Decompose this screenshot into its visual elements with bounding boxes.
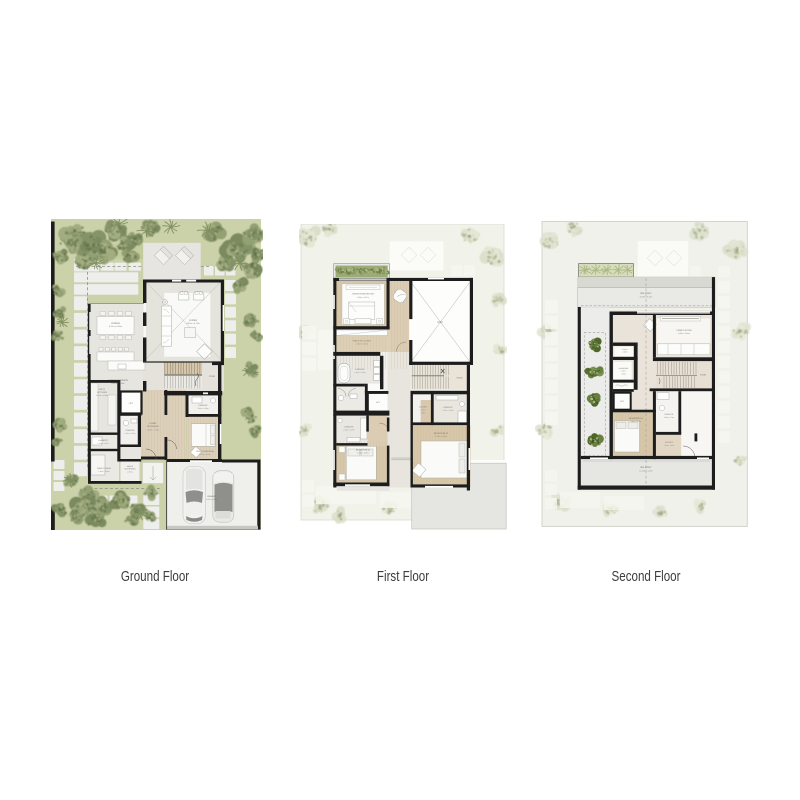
svg-text:BEDROOM 01: BEDROOM 01 xyxy=(434,432,449,435)
svg-text:GARAGE: GARAGE xyxy=(207,495,216,498)
svg-text:STAIR: STAIR xyxy=(700,374,706,377)
svg-text:MAID'S: MAID'S xyxy=(127,465,134,468)
svg-text:LIVING: LIVING xyxy=(189,319,197,322)
svg-text:6.75m x 5.50m: 6.75m x 5.50m xyxy=(206,498,218,501)
svg-text:POWDER: POWDER xyxy=(126,429,136,432)
svg-text:2.50m x 4.00m: 2.50m x 4.00m xyxy=(96,394,108,397)
svg-text:1.72m x: 1.72m x xyxy=(420,409,426,412)
svg-text:1.80m x 7.25m: 1.80m x 7.25m xyxy=(147,428,159,431)
svg-text:DINING: DINING xyxy=(111,322,120,325)
svg-text:BEDROOM 04: BEDROOM 04 xyxy=(629,417,643,420)
svg-text:2.50m x 2.00m: 2.50m x 2.00m xyxy=(98,470,110,473)
svg-text:2.75m x 2.45m: 2.75m x 2.45m xyxy=(442,409,454,412)
svg-text:FAMILY ROOM: FAMILY ROOM xyxy=(677,329,692,332)
svg-text:ENSUITE: ENSUITE xyxy=(344,426,354,429)
svg-text:LOBBY: LOBBY xyxy=(149,422,157,425)
svg-text:4.70m x 4.85m: 4.70m x 4.85m xyxy=(109,325,123,328)
svg-text:1.00m x 2.30m: 1.00m x 2.30m xyxy=(124,432,136,435)
svg-text:KITCHEN: KITCHEN xyxy=(97,391,107,394)
svg-text:1.80m x: 1.80m x xyxy=(622,348,628,351)
svg-text:2.30m x 1.30m: 2.30m x 1.30m xyxy=(97,442,109,445)
svg-text:BEDROOM 02: BEDROOM 02 xyxy=(356,449,371,452)
svg-text:4.95m x 2.50m: 4.95m x 2.50m xyxy=(356,343,368,346)
svg-text:4.70m x 4.00m: 4.70m x 4.00m xyxy=(435,435,447,438)
svg-text:STAIR: STAIR xyxy=(209,375,216,378)
svg-text:ENSUITE: ENSUITE xyxy=(355,368,365,371)
svg-text:BATHROOM: BATHROOM xyxy=(125,468,136,471)
svg-text:1.35m x: 1.35m x xyxy=(127,470,133,473)
svg-text:GUEST BEDROOM: GUEST BEDROOM xyxy=(196,450,214,453)
svg-text:ENSUITE: ENSUITE xyxy=(665,413,674,416)
svg-text:4.00m x 6.75m: 4.00m x 6.75m xyxy=(186,322,200,325)
svg-text:MAID'S ROOM: MAID'S ROOM xyxy=(97,467,111,470)
svg-text:0.90m: 0.90m xyxy=(623,351,628,354)
svg-text:3.60m x 3.70m: 3.60m x 3.70m xyxy=(630,420,642,423)
svg-text:DIRTY: DIRTY xyxy=(99,388,106,391)
svg-text:ENTRANCE: ENTRANCE xyxy=(147,425,160,428)
svg-text:WARDROBE: WARDROBE xyxy=(619,367,630,370)
svg-text:4.80m x 3.80m: 4.80m x 3.80m xyxy=(678,332,690,335)
svg-text:CLOSET: CLOSET xyxy=(665,441,674,444)
svg-text:6.30m x 3.87m: 6.30m x 3.87m xyxy=(357,296,369,299)
svg-text:ENSUITE: ENSUITE xyxy=(443,406,453,409)
svg-text:4.30m x 3.85m: 4.30m x 3.85m xyxy=(357,452,369,455)
svg-text:4.00m x 2.50m: 4.00m x 2.50m xyxy=(354,371,366,374)
svg-text:LIFT: LIFT xyxy=(376,401,381,404)
svg-text:LAUNDRY: LAUNDRY xyxy=(98,439,109,442)
svg-text:CLOSET: CLOSET xyxy=(419,406,428,409)
svg-text:LIFT: LIFT xyxy=(129,402,134,405)
svg-text:VOID: VOID xyxy=(437,321,443,324)
svg-text:WALK IN CLOSET: WALK IN CLOSET xyxy=(353,340,372,343)
svg-text:4.70m x 3.20m: 4.70m x 3.20m xyxy=(199,453,211,456)
svg-text:MASTER BEDROOM: MASTER BEDROOM xyxy=(352,293,373,296)
svg-text:STAIR: STAIR xyxy=(457,377,463,380)
svg-text:4.80m: 4.80m xyxy=(421,412,426,415)
svg-text:ENSUITE: ENSUITE xyxy=(198,404,208,407)
svg-text:2.50m x 3.05m: 2.50m x 3.05m xyxy=(343,429,355,432)
svg-text:2.50m x 2.05m: 2.50m x 2.05m xyxy=(197,407,209,410)
